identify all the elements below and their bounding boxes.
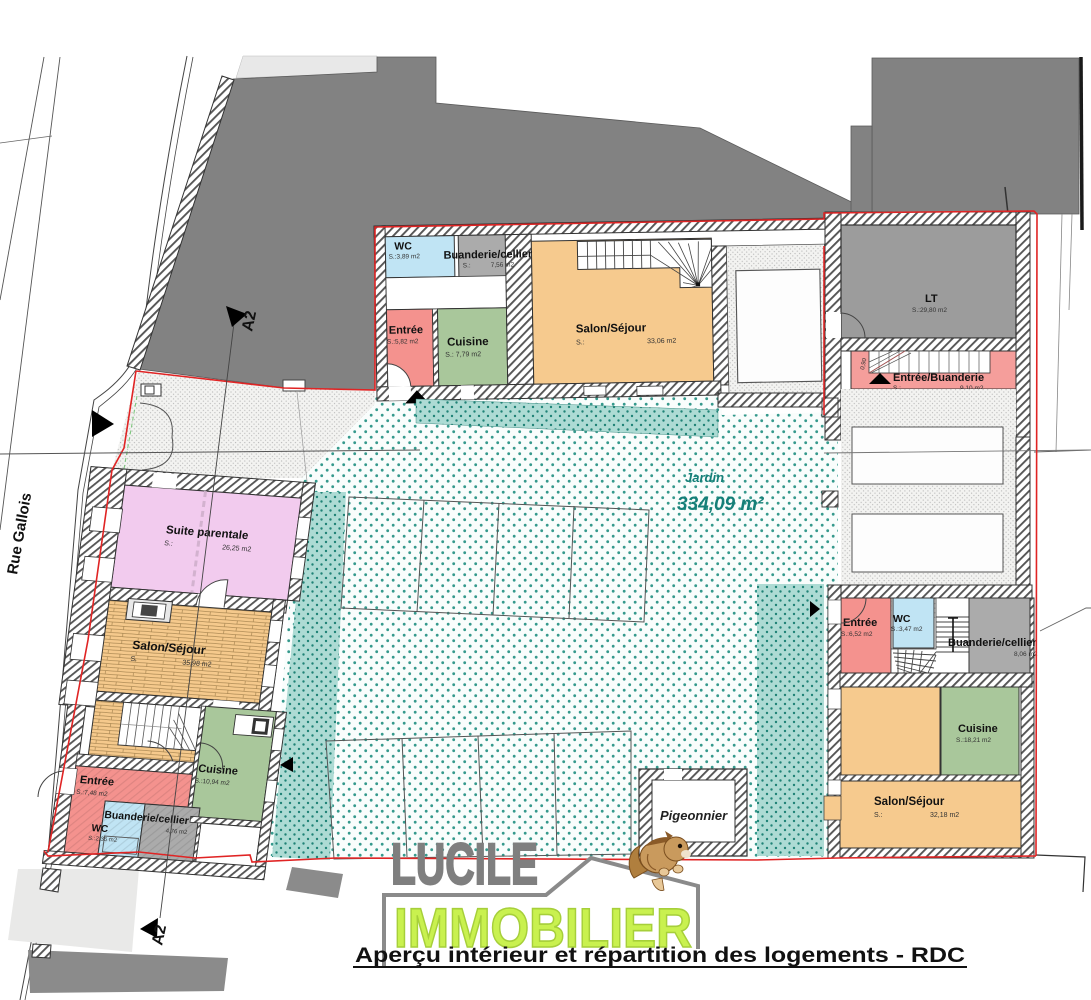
svg-text:Pigeonnier: Pigeonnier [660,808,728,823]
svg-text:S.:29,80 m2: S.:29,80 m2 [912,307,947,314]
svg-text:Entrée: Entrée [843,617,877,629]
svg-text:S.:18,21 m2: S.:18,21 m2 [956,737,991,744]
svg-text:32,18 m2: 32,18 m2 [930,812,959,819]
svg-text:LUCILE: LUCILE [391,832,538,897]
svg-text:S.:: S.: [874,812,883,819]
svg-text:S.:3,47 m2: S.:3,47 m2 [891,626,923,633]
svg-text:S.: S. [130,656,138,663]
svg-text:WC: WC [893,613,911,625]
svg-text:Cuisine: Cuisine [447,336,489,349]
svg-text:Jardin: Jardin [685,470,724,485]
svg-text:S.:3,89 m2: S.:3,89 m2 [388,253,420,261]
svg-text:Cuisine: Cuisine [958,723,998,735]
svg-text:S.:: S.: [463,262,471,269]
svg-text:334,09 m²: 334,09 m² [677,494,764,515]
svg-text:Aperçu intérieur et répartitio: Aperçu intérieur et répartition des loge… [355,943,965,967]
svg-text:Buanderie/cellier: Buanderie/cellier [948,637,1037,649]
svg-text:Entrée/Buanderie: Entrée/Buanderie [893,372,984,384]
svg-text:Salon/Séjour: Salon/Séjour [874,796,945,808]
svg-text:WC: WC [91,823,109,835]
svg-text:LT: LT [925,293,938,305]
svg-text:S.: 7,79 m2: S.: 7,79 m2 [445,351,481,359]
svg-text:S.:6,52 m2: S.:6,52 m2 [841,631,873,638]
svg-text:Salon/Séjour: Salon/Séjour [576,322,647,335]
svg-text:Buanderie/cellier: Buanderie/cellier [443,248,533,262]
svg-text:7,56 m2: 7,56 m2 [491,262,515,269]
svg-text:S.:: S.: [576,339,585,346]
svg-text:WC: WC [394,240,412,252]
svg-text:33,06 m2: 33,06 m2 [647,338,676,346]
svg-text:Entrée: Entrée [389,324,423,337]
svg-text:S.:5,82 m2: S.:5,82 m2 [387,338,419,346]
svg-text:8,06 m2: 8,06 m2 [1014,651,1038,658]
svg-text:S.:: S.: [164,540,174,548]
